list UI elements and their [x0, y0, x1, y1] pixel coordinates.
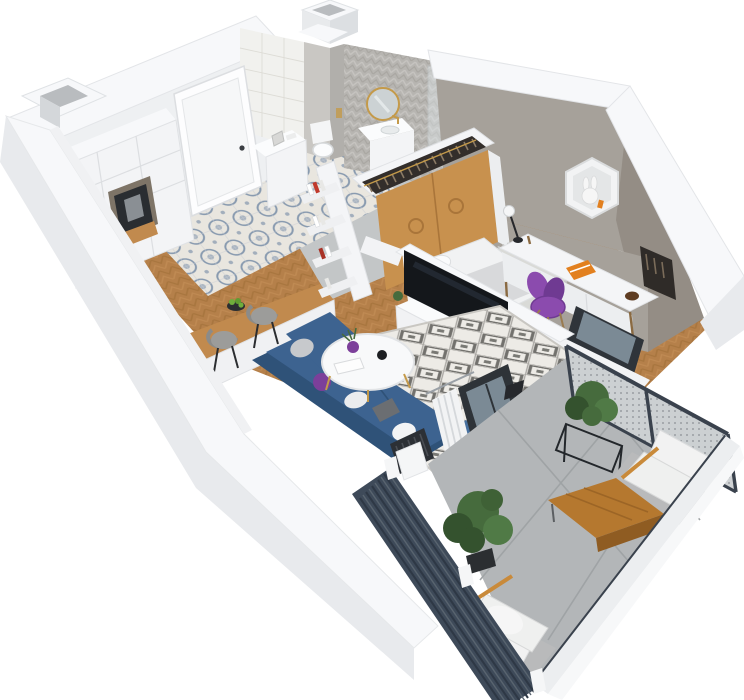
- tv-decor-plant: [393, 291, 403, 301]
- apartment-3d-scene: [0, 0, 744, 700]
- toy-fox: [625, 292, 639, 301]
- hexagon-shelf: [566, 158, 618, 218]
- black-jar: [377, 350, 387, 360]
- floorplan-render: [0, 0, 744, 700]
- toilet: [310, 120, 333, 157]
- door-handle: [239, 145, 244, 150]
- door-cut-handle-1: [409, 219, 423, 233]
- door-cut-handle-2: [449, 199, 463, 213]
- towel-holder: [336, 108, 342, 118]
